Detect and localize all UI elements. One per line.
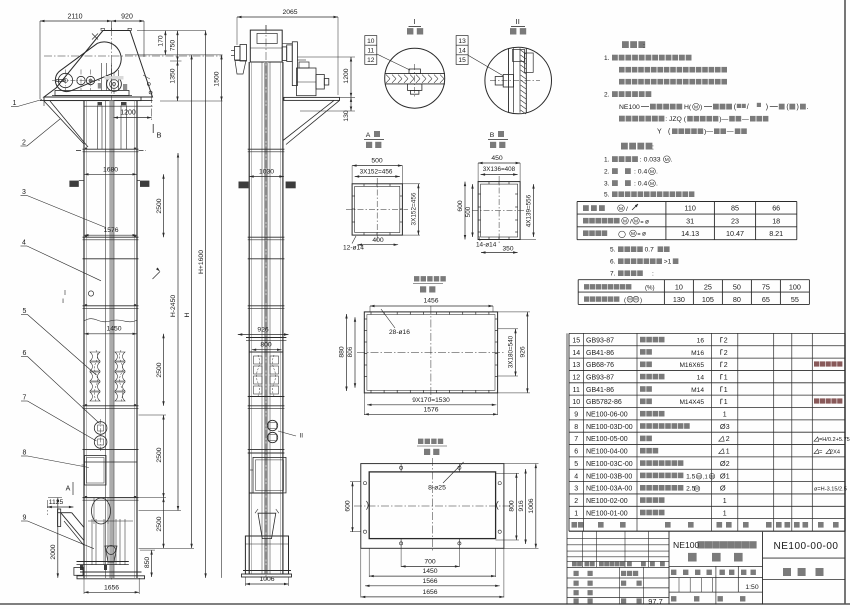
svg-text:1200: 1200	[343, 68, 350, 83]
svg-text:GB41-86: GB41-86	[586, 387, 614, 394]
svg-text:1.5: 1.5	[686, 473, 695, 480]
svg-text:I: I	[413, 17, 415, 26]
svg-text:M14: M14	[691, 387, 704, 394]
svg-text:8: 8	[574, 424, 578, 431]
svg-text:2000: 2000	[50, 544, 57, 559]
svg-text:14: 14	[572, 350, 580, 357]
svg-text:/: /	[747, 104, 749, 111]
svg-text:2500: 2500	[156, 516, 163, 531]
svg-text:GB68-76: GB68-76	[586, 362, 614, 369]
svg-text:500: 500	[371, 158, 383, 165]
svg-text:80: 80	[733, 295, 741, 304]
svg-text:1006: 1006	[528, 498, 535, 513]
svg-text:13: 13	[458, 38, 466, 45]
svg-text:12: 12	[572, 374, 580, 381]
svg-text:M: M	[695, 486, 699, 491]
svg-text:.: .	[656, 169, 658, 176]
svg-text:800: 800	[260, 342, 272, 349]
svg-text:1: 1	[724, 374, 728, 381]
svg-text:10: 10	[572, 399, 580, 406]
svg-text:65: 65	[762, 295, 770, 304]
svg-text:M: M	[634, 297, 638, 302]
svg-text:3X152=456: 3X152=456	[410, 192, 417, 225]
svg-text:12-ø14: 12-ø14	[343, 245, 364, 252]
svg-text:13: 13	[572, 362, 580, 369]
svg-text:GB5782-86: GB5782-86	[586, 399, 622, 406]
svg-text:I: I	[62, 298, 64, 305]
svg-text:): )	[766, 104, 768, 111]
svg-text:920: 920	[121, 14, 133, 21]
svg-text:15: 15	[458, 57, 466, 64]
svg-text:7: 7	[23, 395, 27, 402]
svg-text:1: 1	[723, 510, 727, 517]
svg-text:3X136=408: 3X136=408	[483, 166, 516, 173]
svg-text:14-ø14: 14-ø14	[476, 242, 497, 249]
svg-text:880: 880	[339, 346, 346, 358]
svg-text:926: 926	[257, 327, 269, 334]
svg-text:/: /	[630, 219, 632, 226]
svg-text:NE100-03A-00: NE100-03A-00	[586, 486, 632, 493]
svg-text:8-ø25: 8-ø25	[428, 485, 446, 492]
svg-text:1566: 1566	[422, 578, 437, 585]
svg-text:0.7: 0.7	[645, 247, 654, 254]
svg-text:>1: >1	[664, 259, 672, 266]
svg-text:M16: M16	[691, 350, 704, 357]
svg-text:ø=H-3.15/2.5: ø=H-3.15/2.5	[814, 487, 847, 493]
svg-text:M14X45: M14X45	[679, 399, 704, 406]
svg-text:8.21: 8.21	[769, 229, 783, 238]
svg-text:M: M	[650, 169, 654, 175]
svg-text:1: 1	[13, 100, 17, 107]
svg-text:1125: 1125	[49, 499, 64, 506]
svg-text:3X180=540: 3X180=540	[508, 335, 515, 368]
svg-text:1576: 1576	[423, 406, 438, 413]
svg-text:28-ø16: 28-ø16	[389, 329, 410, 336]
svg-text:7: 7	[574, 436, 578, 443]
svg-text:350: 350	[502, 246, 513, 253]
svg-text:16: 16	[697, 337, 705, 344]
svg-text:600: 600	[345, 500, 352, 512]
svg-text:3: 3	[22, 189, 26, 196]
svg-text:105: 105	[702, 295, 714, 304]
svg-text:NE100-03B-00: NE100-03B-00	[586, 473, 632, 480]
svg-text:15: 15	[572, 337, 580, 344]
svg-text:2: 2	[22, 140, 26, 147]
svg-text:1656: 1656	[422, 589, 437, 596]
svg-text:1450: 1450	[422, 568, 437, 575]
svg-text:1: 1	[726, 449, 730, 456]
svg-text:130: 130	[673, 295, 685, 304]
svg-text:(%): (%)	[645, 285, 655, 292]
svg-text:NE100-00-00: NE100-00-00	[774, 541, 839, 552]
svg-text:170: 170	[158, 35, 165, 47]
svg-text:1.: 1.	[604, 55, 610, 62]
svg-text:2: 2	[726, 436, 730, 443]
svg-text:5.: 5.	[604, 192, 610, 199]
svg-text:6.: 6.	[610, 259, 616, 266]
svg-text:85: 85	[731, 204, 739, 213]
svg-text:7.: 7.	[610, 271, 616, 278]
svg-text:23: 23	[731, 216, 739, 225]
svg-text:11: 11	[367, 48, 374, 55]
svg-text:NE100-06-00: NE100-06-00	[586, 412, 628, 419]
svg-text:GB41-86: GB41-86	[586, 350, 614, 357]
svg-text:1030: 1030	[259, 168, 274, 175]
svg-text:/: /	[626, 206, 628, 213]
svg-text:10: 10	[367, 38, 375, 45]
svg-text:=: =	[637, 232, 640, 238]
svg-text:)—: )—	[704, 129, 713, 136]
svg-text:M: M	[650, 181, 654, 187]
svg-text:1: 1	[723, 412, 727, 419]
svg-text:B: B	[490, 132, 495, 139]
svg-text:Ø: Ø	[720, 484, 726, 493]
svg-text:Y: Y	[657, 129, 662, 136]
svg-text:ø: ø	[645, 219, 649, 226]
svg-text:): )	[797, 104, 799, 111]
svg-text:M: M	[694, 105, 698, 111]
svg-text:1656: 1656	[104, 585, 119, 592]
svg-text:10: 10	[675, 283, 683, 292]
svg-text:50: 50	[733, 283, 741, 292]
svg-text:9X170=1530: 9X170=1530	[412, 397, 450, 404]
svg-text:M: M	[623, 219, 627, 225]
svg-text:110: 110	[684, 204, 695, 213]
svg-text:10.47: 10.47	[726, 229, 744, 238]
svg-text:1006: 1006	[259, 576, 274, 583]
svg-text:NE100: NE100	[673, 540, 699, 550]
svg-text::: :	[652, 271, 654, 278]
svg-text:6: 6	[23, 350, 27, 357]
svg-text:,1: ,1	[703, 474, 708, 480]
svg-text:M: M	[619, 206, 623, 212]
svg-text:M: M	[697, 474, 701, 479]
svg-text:=: =	[640, 220, 643, 226]
svg-text:M: M	[628, 297, 632, 302]
svg-text:B: B	[157, 131, 162, 140]
svg-text:M16X65: M16X65	[679, 362, 704, 369]
svg-text:M: M	[710, 474, 714, 479]
svg-text:II: II	[516, 17, 520, 26]
svg-text:3: 3	[726, 424, 730, 431]
svg-text:9: 9	[23, 515, 27, 522]
svg-text:1: 1	[574, 510, 578, 517]
svg-text:450: 450	[491, 155, 503, 162]
svg-text:1450: 1450	[106, 326, 121, 333]
svg-text:2: 2	[724, 362, 728, 369]
svg-text:: 0.033: : 0.033	[640, 157, 661, 164]
svg-text:: 0.4: : 0.4	[634, 169, 647, 176]
svg-text:1350: 1350	[170, 68, 177, 83]
svg-text:750: 750	[170, 40, 177, 52]
svg-text:.: .	[656, 181, 658, 188]
svg-text:916: 916	[518, 500, 525, 512]
svg-text:66: 66	[772, 204, 780, 213]
svg-text:M: M	[665, 157, 669, 163]
svg-text:2065: 2065	[282, 9, 297, 16]
svg-text:4: 4	[22, 240, 26, 247]
svg-text:A: A	[366, 132, 371, 139]
svg-text:3.: 3.	[604, 181, 610, 188]
svg-text:1: 1	[724, 399, 728, 406]
svg-text:II: II	[300, 433, 304, 440]
svg-text:H-2450: H-2450	[170, 295, 177, 318]
svg-text:18: 18	[772, 216, 780, 225]
svg-text:600: 600	[457, 200, 464, 212]
svg-text:A: A	[66, 486, 71, 493]
svg-text:6: 6	[574, 449, 578, 456]
svg-text:.: .	[671, 157, 673, 164]
svg-text:130: 130	[343, 110, 350, 122]
svg-text:)—: )—	[719, 116, 728, 123]
svg-text:806: 806	[347, 346, 354, 357]
svg-text:1456: 1456	[423, 298, 438, 305]
svg-text:2.: 2.	[604, 169, 610, 176]
svg-text:1.: 1.	[604, 157, 610, 164]
svg-text:: 0.4: : 0.4	[634, 181, 647, 188]
svg-text:8: 8	[23, 450, 27, 457]
svg-text:5.: 5.	[610, 247, 616, 254]
svg-text:1200: 1200	[120, 110, 136, 117]
svg-text:1:50: 1:50	[745, 584, 758, 591]
svg-text:800: 800	[509, 500, 516, 512]
svg-text:NE100-02-00: NE100-02-00	[586, 498, 628, 505]
svg-text:NE100-03C-00: NE100-03C-00	[586, 461, 633, 468]
svg-text:—: —	[742, 116, 749, 123]
svg-text:2.: 2.	[604, 92, 610, 99]
svg-text:1: 1	[726, 473, 730, 480]
svg-text:NE100-04-00: NE100-04-00	[586, 449, 628, 456]
svg-text:H+1600: H+1600	[198, 250, 205, 274]
svg-text:12: 12	[367, 57, 375, 64]
svg-text:NE100-01-00: NE100-01-00	[586, 510, 628, 517]
svg-text:H: H	[184, 312, 191, 317]
svg-text:GB93-87: GB93-87	[586, 374, 614, 381]
svg-text:.: .	[807, 104, 809, 111]
svg-text:2500: 2500	[156, 447, 163, 462]
svg-text:2: 2	[574, 498, 578, 505]
svg-text:5: 5	[23, 308, 27, 315]
svg-text:2: 2	[724, 350, 728, 357]
svg-text:11: 11	[573, 387, 580, 394]
svg-text:M: M	[634, 219, 638, 225]
svg-text::: :	[643, 43, 645, 50]
svg-text:5: 5	[574, 461, 578, 468]
svg-text:75: 75	[762, 283, 770, 292]
svg-text:2X4: 2X4	[830, 450, 840, 456]
svg-text:850: 850	[144, 557, 151, 569]
svg-text:3X152=456: 3X152=456	[360, 169, 393, 176]
svg-text:1: 1	[724, 387, 728, 394]
svg-text:2500: 2500	[156, 198, 163, 213]
svg-text:ø: ø	[642, 231, 646, 238]
svg-text:—: —	[727, 129, 734, 136]
svg-text:1500: 1500	[214, 71, 221, 86]
svg-text:700: 700	[424, 558, 436, 565]
svg-text:31: 31	[686, 216, 694, 225]
svg-text:100: 100	[789, 283, 801, 292]
svg-text:55: 55	[791, 295, 799, 304]
svg-text:97.7: 97.7	[648, 597, 662, 606]
svg-text:3: 3	[574, 486, 578, 493]
svg-text:14: 14	[458, 48, 466, 55]
svg-text:NE100-05-00: NE100-05-00	[586, 436, 628, 443]
svg-text:2: 2	[726, 461, 730, 468]
svg-text:25: 25	[704, 283, 712, 292]
svg-text:1: 1	[723, 498, 727, 505]
svg-text::: :	[652, 145, 654, 152]
svg-text:500: 500	[465, 206, 472, 217]
svg-text:=H/0.2+5.75: =H/0.2+5.75	[819, 437, 850, 443]
svg-text:NE100-03D-00: NE100-03D-00	[586, 424, 633, 431]
svg-text:1680: 1680	[103, 166, 118, 173]
svg-text:2500: 2500	[156, 362, 163, 377]
svg-text:9: 9	[574, 412, 578, 419]
svg-text:2110: 2110	[67, 14, 82, 21]
svg-text:: JZQ (: : JZQ (	[665, 116, 687, 123]
svg-text:926: 926	[520, 346, 527, 358]
svg-text:2: 2	[724, 337, 728, 344]
svg-text:400: 400	[372, 237, 384, 244]
svg-text:4: 4	[574, 473, 578, 480]
svg-text:GB93-87: GB93-87	[586, 337, 614, 344]
svg-text:14: 14	[697, 374, 705, 381]
svg-text:): )	[700, 104, 702, 111]
svg-text:14.13: 14.13	[681, 229, 699, 238]
svg-text:M: M	[631, 231, 635, 237]
svg-text:H(: H(	[684, 104, 692, 111]
svg-text:NE100: NE100	[619, 104, 640, 111]
svg-text:): )	[640, 297, 642, 304]
svg-text:4X139=556: 4X139=556	[526, 194, 533, 227]
